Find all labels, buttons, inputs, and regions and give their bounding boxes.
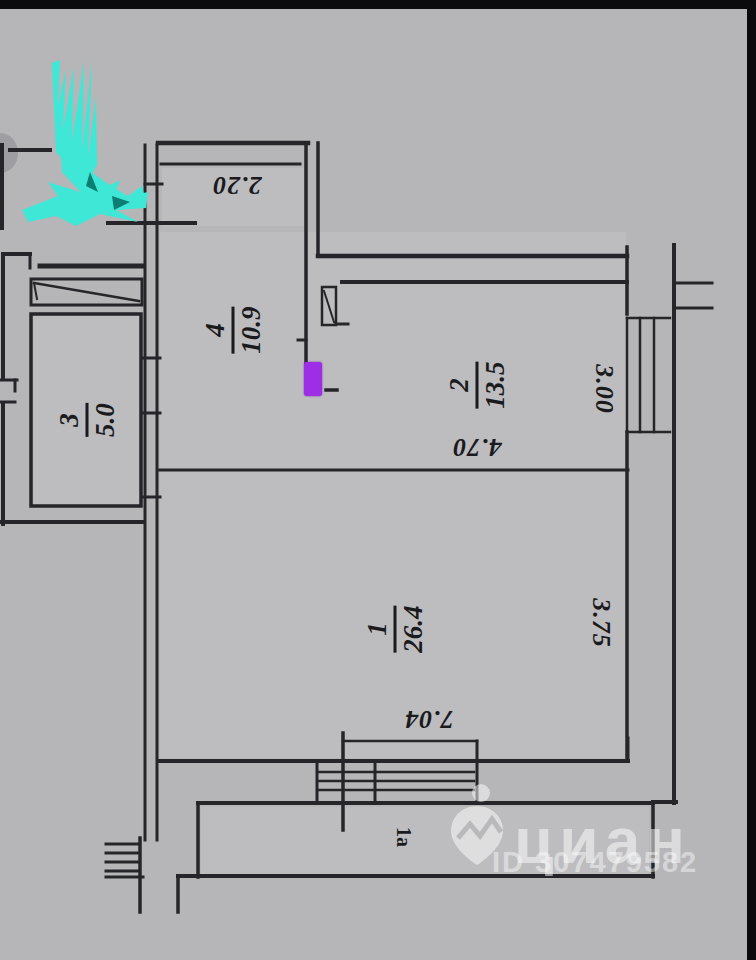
room-1-label: 1 26.4 bbox=[364, 605, 427, 652]
wall-lines bbox=[0, 143, 712, 912]
fraction-bar bbox=[232, 306, 235, 353]
balcony-1a-label: 1а bbox=[392, 827, 415, 847]
fraction-bar bbox=[476, 361, 479, 408]
watermark-id: ID 307479582 bbox=[492, 846, 698, 879]
top-black-bar bbox=[0, 0, 756, 9]
room-2-number: 2 bbox=[446, 378, 473, 392]
room-1-area: 26.4 bbox=[400, 605, 427, 652]
purple-marker bbox=[304, 362, 322, 396]
room-2-area: 13.5 bbox=[482, 361, 509, 408]
room-2-label: 2 13.5 bbox=[446, 361, 509, 408]
room-3-label: 3 5.0 bbox=[56, 403, 119, 437]
cyan-scribble bbox=[22, 60, 148, 226]
fraction-bar bbox=[394, 605, 397, 652]
fraction-bar bbox=[86, 403, 89, 437]
dim-balcony-width: 2.20 bbox=[212, 170, 262, 200]
room-4-label: 4 10.9 bbox=[202, 306, 265, 353]
dim-room2-depth: 3.00 bbox=[589, 364, 619, 414]
right-black-bar bbox=[747, 0, 756, 960]
room-1-number: 1 bbox=[364, 622, 391, 636]
dim-room2-width: 4.70 bbox=[452, 432, 502, 462]
dim-room1-depth: 3.75 bbox=[586, 598, 616, 648]
dim-room1-width: 7.04 bbox=[404, 704, 454, 734]
room-4-area: 10.9 bbox=[238, 306, 265, 353]
floorplan-canvas: 4 10.9 2 13.5 3 5.0 1 26.4 2.20 4.70 3.0… bbox=[0, 0, 756, 960]
room-4-number: 4 bbox=[202, 323, 229, 337]
room-3-area: 5.0 bbox=[92, 403, 119, 437]
room-3-number: 3 bbox=[56, 413, 83, 427]
